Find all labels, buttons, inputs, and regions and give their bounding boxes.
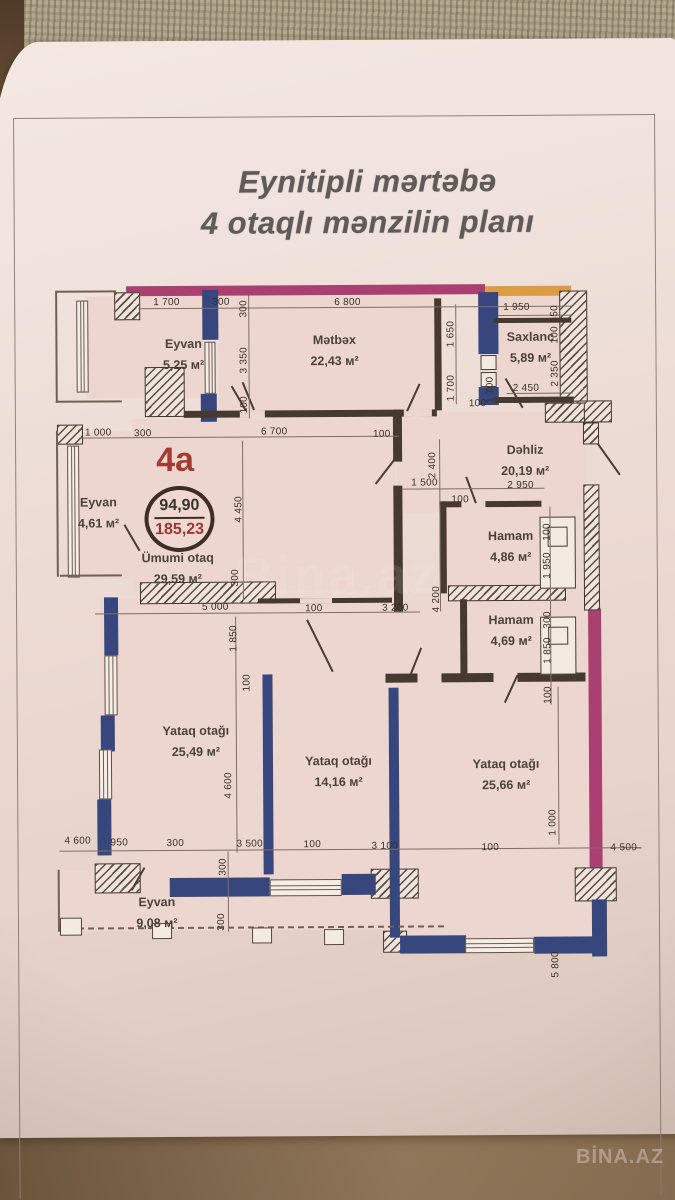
room-label-eyvan-908: Eyvan 9,08 м² [125,895,189,930]
window-symbol [76,301,89,393]
room-label-umumi-otaq: Ümumi otaq 29,59 м² [128,551,228,587]
balcony-post [324,929,344,945]
wall-segment-magenta [588,608,603,871]
room-area: 5,89 м² [498,351,562,365]
room-label-hamam-486: Hamam 4,86 м² [480,529,542,564]
dimension-label: 1 700 [446,375,457,402]
room-name: Saxlanc [498,330,562,344]
dimension-label: 100 [469,398,487,409]
room-label-dehliz: Dəhliz 20,19 м² [493,443,557,478]
title-line-1: Eynitipli mərtəbə [0,160,675,205]
wall-segment [262,674,273,874]
dimension-label: 1 950 [542,552,553,579]
wall-segment [478,292,498,354]
dimension-label: 3 500 [236,838,263,849]
room-name: Dəhliz [493,443,557,457]
hatched-wall [583,484,600,610]
wall-segment [592,899,607,956]
dimension-label: 5 000 [202,602,229,613]
room-label-saxlanc: Saxlanc 5,89 м² [498,330,562,365]
dimension-label: 6 700 [261,426,288,437]
hatched-wall [559,290,588,404]
dimension-label: 300 [218,858,229,876]
room-label-yataq-1416: Yataq otağı 14,16 м² [291,754,386,790]
watermark-bina-az: BİNA.AZ [576,1146,664,1169]
room-area: 4,86 м² [480,550,542,564]
room-fill [397,411,586,512]
balcony-edge [56,290,116,292]
unit-living-area: 94,90 [148,497,210,515]
window-symbol [270,879,342,896]
dimension-label: 100 [239,396,250,414]
dimension-label: 100 [451,494,469,505]
floor-plan-scene: Eynitipli mərtəbə 4 otaqlı mənzilin plan… [0,0,675,1200]
room-name: Mətbəx [294,333,374,347]
room-name: Yataq otağı [456,757,556,772]
wall-segment [104,597,118,655]
dimension-label: 1 950 [503,302,530,313]
dimension-label: 1 700 [485,376,496,403]
room-label-metbex: Mətbəx 22,43 м² [294,333,374,368]
wall-segment [534,936,596,953]
dimension-label: 1 000 [85,427,112,438]
hatched-wall [95,863,141,893]
watermark-center: Bina.az [235,544,438,607]
window-symbol [99,749,112,799]
dimension-label: 650 [549,305,560,323]
room-area: 4,69 м² [480,634,542,648]
dimension-label: 1 650 [445,321,456,348]
balcony-edge [56,400,122,402]
dimension-label: 1 700 [153,297,180,308]
wall-segment [485,501,541,507]
dimension-label: 100 [303,839,321,850]
shaft-box [481,355,497,370]
balcony-post [60,918,82,936]
dimension-label: 1 000 [547,809,558,836]
dimension-label: 100 [241,674,252,692]
dimension-label: 2 400 [427,452,438,479]
room-label-eyvan-461: Eyvan 4,61 м² [69,495,127,530]
hatched-wall [145,367,185,417]
room-area: 25,66 м² [456,778,556,793]
balcony-edge [60,574,122,576]
dimension-label: 100 [373,429,391,440]
dimension-label: 2 950 [507,480,534,491]
dimension-label: 2 450 [513,383,540,394]
dimension-label: 300 [238,300,249,318]
dimension-label: 950 [110,837,128,848]
room-area: 14,16 м² [291,775,386,790]
wall-segment [389,688,401,938]
wall-segment [101,715,115,751]
room-area: 29,59 м² [128,572,228,587]
room-name: Eyvan [125,895,189,909]
hatched-wall [583,422,599,444]
dimension-label: 3 350 [238,347,249,374]
balcony-post [252,927,272,943]
dimension-label: 300 [166,838,184,849]
dimension-label: 1 850 [228,625,239,652]
dimension-label: 100 [543,686,554,704]
room-name: Yataq otağı [146,724,246,739]
room-area: 9,08 м² [125,916,189,930]
room-area: 25,49 м² [146,745,246,760]
title-line-2: 4 otaqlı mənzilin planı [0,200,675,245]
room-area: 20,19 м² [493,464,557,478]
window-symbol [465,938,534,953]
room-area: 4,61 м² [69,516,127,530]
dimension-label: 5 800 [550,951,561,978]
room-name: Eyvan [138,337,228,352]
wall-segment [385,674,417,683]
room-label-eyvan-525: Eyvan 5,25 м² [138,337,228,373]
circle-divider [154,517,204,519]
room-name: Eyvan [69,495,127,509]
dimension-label: 300 [134,428,152,439]
dimension-label: 4 500 [610,842,637,853]
room-label-hamam-469: Hamam 4,69 м² [480,613,542,648]
dimension-label: 4 600 [223,772,234,799]
dimension-label: 6 800 [334,297,361,308]
wall-segment [400,935,466,953]
room-name: Ümumi otaq [128,551,228,566]
wall-segment [494,397,574,403]
page-title: Eynitipli mərtəbə 4 otaqlı mənzilin plan… [0,160,675,246]
wall-segment [434,298,442,410]
photo-background: Eynitipli mərtəbə 4 otaqlı mənzilin plan… [0,0,675,1200]
room-name: Yataq otağı [291,754,386,769]
dimension-label: 1 850 [542,637,553,664]
dimension-label: 300 [212,297,230,308]
hatched-wall [545,402,585,422]
unit-total-area: 185,23 [149,521,211,539]
dimension-label: 4 450 [233,496,244,523]
room-name: Hamam [480,613,542,627]
hatched-wall [575,867,617,901]
window-symbol [104,655,117,715]
wall-segment [460,599,467,677]
wall-segment [97,799,111,855]
dimension-label: 100 [481,842,499,853]
unit-area-circle: 94,90 185,23 [144,486,214,552]
dimension-label: 1 500 [411,477,438,488]
room-name: Hamam [480,529,542,543]
wall-segment [342,874,376,895]
unit-number: 4a [156,441,194,480]
dimension-label: 300 [216,913,227,931]
dimension-label: 4 600 [64,836,91,847]
dimension-label: 300 [542,611,553,629]
room-label-yataq-2566: Yataq otağı 25,66 м² [456,757,556,793]
room-label-yataq-2549: Yataq otağı 25,49 м² [146,724,246,760]
dimension-label: 100 [542,523,553,541]
room-area: 5,25 м² [139,358,229,373]
hatched-wall [114,292,140,320]
dimension-label: 3 100 [371,841,398,852]
room-area: 22,43 м² [294,354,374,368]
wall-segment [441,673,493,682]
hatched-wall [57,425,83,445]
